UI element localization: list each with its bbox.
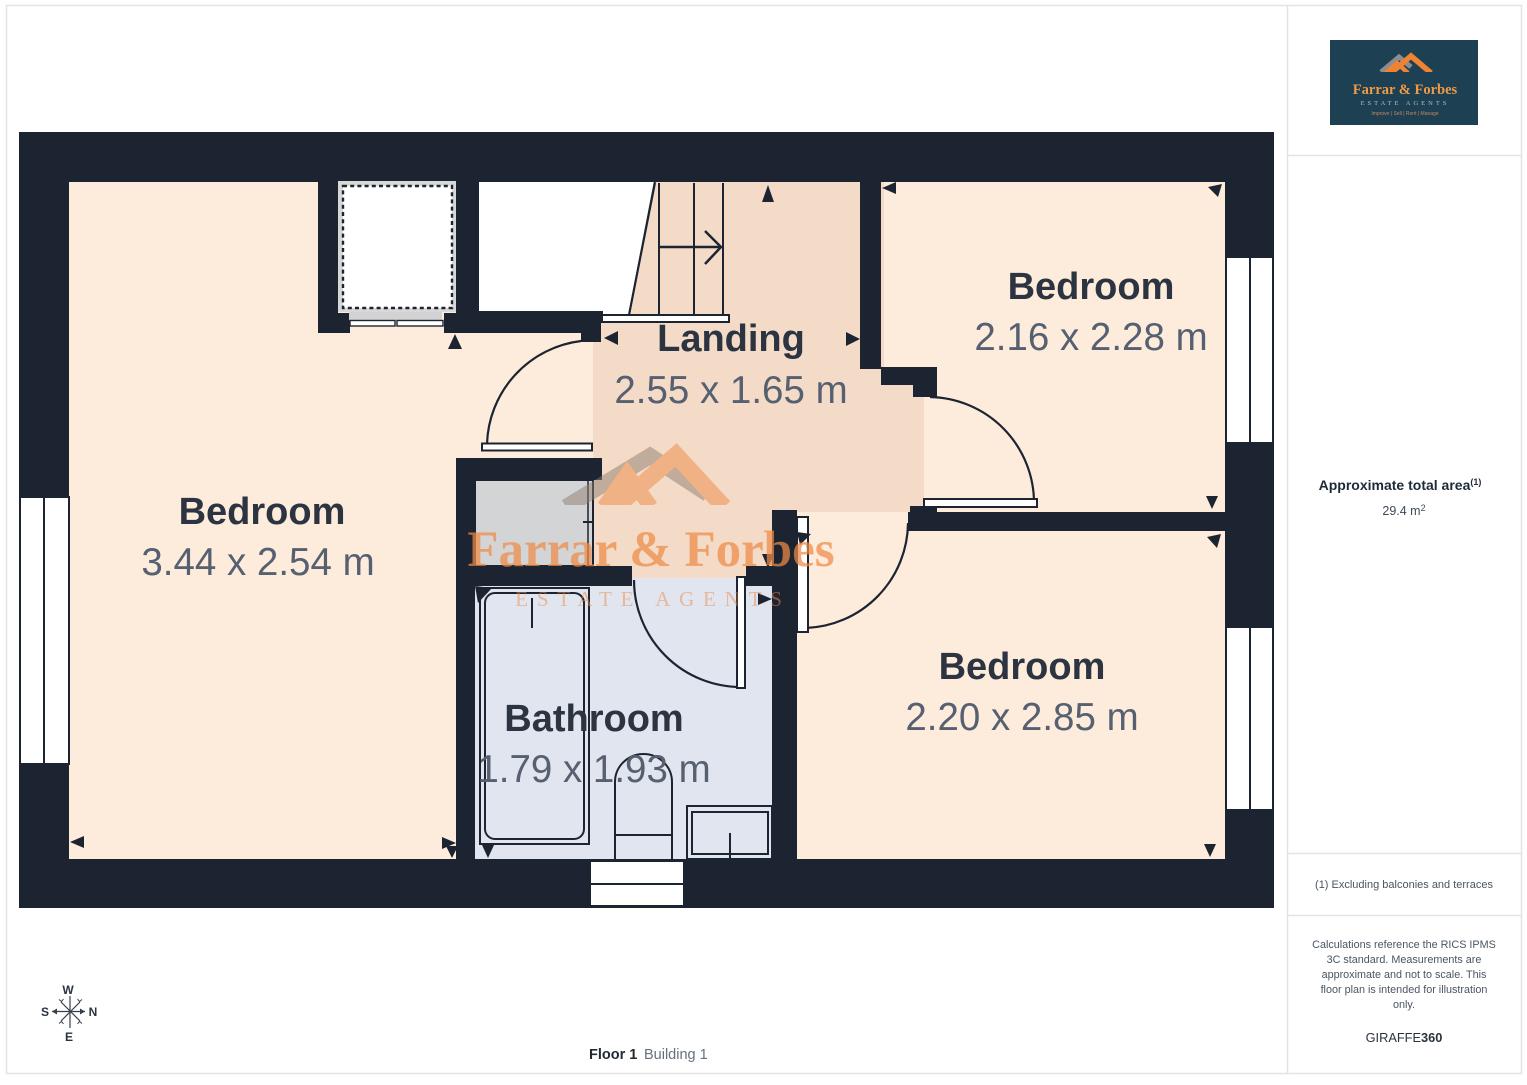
svg-text:1.79 x 1.93 m: 1.79 x 1.93 m	[477, 748, 710, 791]
svg-text:2.16 x 2.28 m: 2.16 x 2.28 m	[974, 316, 1207, 359]
svg-text:approximate and not to scale.: approximate and not to scale. This	[1322, 969, 1487, 981]
svg-text:3.44 x 2.54 m: 3.44 x 2.54 m	[141, 541, 374, 584]
svg-text:E: E	[65, 1030, 73, 1044]
svg-text:Farrar & Forbes: Farrar & Forbes	[1353, 82, 1458, 98]
svg-text:Building 1: Building 1	[644, 1047, 708, 1063]
svg-text:2.20 x 2.85 m: 2.20 x 2.85 m	[905, 696, 1138, 739]
svg-text:Bathroom: Bathroom	[504, 698, 683, 740]
svg-text:floor plan is intended for ill: floor plan is intended for illustration	[1321, 984, 1488, 996]
svg-text:Floor 1: Floor 1	[589, 1047, 637, 1063]
svg-text:ESTATE AGENTS: ESTATE AGENTS	[515, 587, 790, 611]
svg-text:S: S	[41, 1005, 49, 1019]
svg-text:N: N	[89, 1005, 98, 1019]
svg-text:Bedroom: Bedroom	[1008, 266, 1175, 308]
svg-text:Landing: Landing	[657, 318, 805, 360]
svg-text:Bedroom: Bedroom	[179, 491, 346, 533]
svg-text:GIRAFFE360: GIRAFFE360	[1366, 1030, 1443, 1045]
svg-text:W: W	[62, 983, 74, 997]
svg-text:3C standard. Measurements are: 3C standard. Measurements are	[1327, 954, 1482, 966]
svg-text:Farrar & Forbes: Farrar & Forbes	[467, 522, 834, 578]
svg-text:ESTATE AGENTS: ESTATE AGENTS	[1361, 100, 1450, 107]
svg-text:(1) Excluding balconies and te: (1) Excluding balconies and terraces	[1315, 879, 1493, 891]
svg-text:Calculations reference the RIC: Calculations reference the RICS IPMS	[1312, 939, 1496, 951]
svg-text:Approximate total area(1): Approximate total area(1)	[1319, 477, 1482, 493]
svg-text:Bedroom: Bedroom	[939, 646, 1106, 688]
svg-text:Improve | Sell | Rent | Manage: Improve | Sell | Rent | Manage	[1371, 111, 1438, 117]
svg-text:29.4 m2: 29.4 m2	[1382, 503, 1425, 518]
svg-text:only.: only.	[1393, 999, 1415, 1011]
svg-text:2.55 x 1.65 m: 2.55 x 1.65 m	[614, 369, 847, 412]
